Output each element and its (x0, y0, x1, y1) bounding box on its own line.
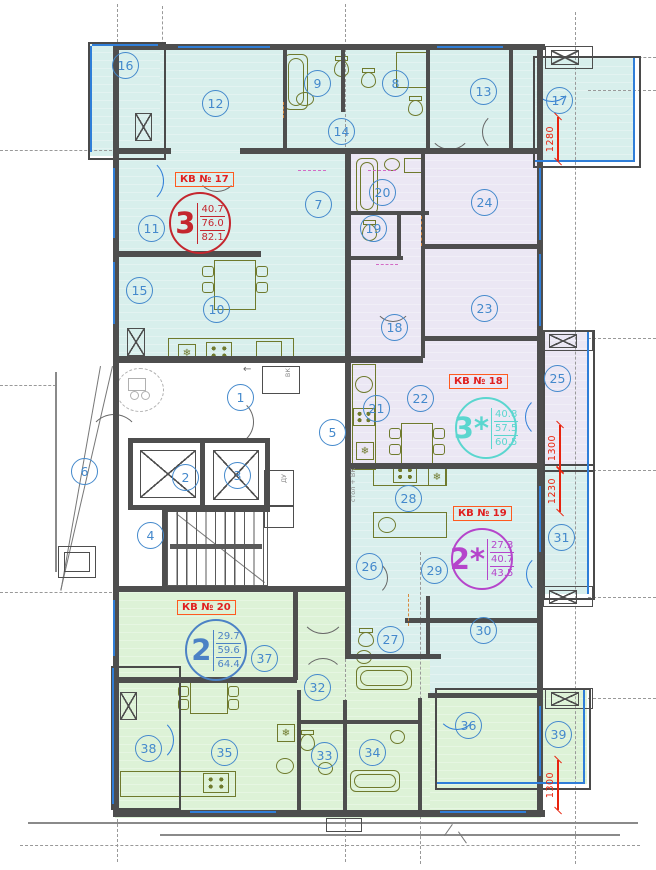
apartment-areas: 29.7 59.6 64.4 (213, 630, 240, 671)
axis-line (588, 597, 656, 598)
door-arc (525, 396, 567, 438)
chair (433, 444, 445, 455)
wheelchair-icon (128, 378, 146, 391)
chair (256, 266, 268, 277)
chair (433, 428, 445, 439)
axis-line (0, 385, 56, 386)
threshold-dash (376, 264, 398, 265)
room-number-27: 27 (377, 626, 404, 653)
axis-line (588, 698, 656, 699)
fridge-icon: ❄ (356, 442, 374, 460)
room-number-26: 26 (356, 553, 383, 580)
vent-shaft (549, 590, 577, 604)
room-number-3: 3 (224, 462, 251, 489)
area-usable: 40.7 (490, 553, 514, 567)
room-number-12: 12 (202, 90, 229, 117)
room-number-31: 31 (548, 524, 575, 551)
bathtub (350, 770, 400, 792)
sink (390, 730, 405, 744)
wall (162, 508, 167, 586)
wall (428, 693, 543, 698)
window (190, 811, 276, 813)
door-arc (428, 106, 472, 150)
chair (228, 699, 239, 710)
wall (421, 152, 425, 358)
door-frame-dash (408, 594, 409, 626)
apartment-areas: 40.8 57.5 60.5 (491, 408, 518, 449)
entry-arrow-icon: ← (243, 364, 251, 375)
window (113, 168, 115, 238)
room-number-11: 11 (138, 215, 165, 242)
sink (355, 376, 373, 393)
vent-shaft (551, 692, 579, 706)
shaft-label: ДУ (280, 474, 288, 483)
window (539, 706, 541, 776)
area-total: 60.5 (494, 436, 518, 449)
door-arc (300, 588, 346, 634)
wall (113, 251, 261, 257)
wall (345, 463, 543, 469)
window (90, 46, 92, 152)
toilet (361, 72, 376, 88)
kitchen-note: стол + ВК (349, 468, 357, 502)
apartment-stamp-18: 3* 40.8 57.5 60.5 (455, 397, 517, 459)
room-number-14: 14 (328, 118, 355, 145)
stove (203, 773, 229, 793)
vent-shaft (135, 113, 152, 141)
wall (345, 211, 429, 215)
room-number-17: 17 (546, 87, 573, 114)
chair (202, 266, 214, 277)
room-number-7: 7 (305, 191, 332, 218)
room-number-9: 9 (304, 70, 331, 97)
shaft-label: ВК (284, 368, 292, 377)
room-number-13: 13 (470, 78, 497, 105)
window (539, 254, 541, 326)
room-number-35: 35 (211, 739, 238, 766)
axis-line (588, 338, 656, 339)
axis-line (20, 845, 640, 846)
foundation-box (326, 818, 362, 832)
apartment-stamp-19: 2* 27.3 40.7 43.5 (451, 528, 513, 590)
apartment-areas: 27.3 40.7 43.5 (487, 539, 514, 580)
wall (297, 690, 301, 814)
wall (200, 443, 205, 508)
room-number-1: 1 (227, 384, 254, 411)
wall (113, 586, 351, 592)
fridge-icon: ❄ (277, 724, 295, 742)
window (437, 46, 503, 48)
wall (113, 356, 423, 363)
room-number-4: 4 (137, 522, 164, 549)
chair (389, 444, 401, 455)
window (178, 46, 270, 48)
apartment-stamp-17: 3 40.7 76.0 82.1 (169, 192, 231, 254)
room-number-6: 6 (71, 458, 98, 485)
window (437, 782, 583, 784)
room-number-22: 22 (407, 385, 434, 412)
door-frame-dash (421, 216, 422, 246)
window (92, 44, 158, 46)
apartment-label-17: КВ № 17 (175, 172, 234, 187)
wheelchair-icon (141, 391, 150, 400)
floor-plan: ❄ ❄ ❄ ❄ ВК ДУ стол + ВК (0, 0, 656, 870)
room-number-29: 29 (421, 557, 448, 584)
area-total: 64.4 (216, 658, 240, 671)
wall (343, 700, 347, 814)
room-number-30: 30 (470, 617, 497, 644)
wall (423, 244, 541, 249)
utility-shaft (262, 366, 300, 394)
bathtub (356, 666, 412, 690)
apartment-label-19: КВ № 19 (453, 506, 512, 521)
wall (426, 596, 430, 658)
room-number-20: 20 (369, 179, 396, 206)
dining-table (190, 682, 228, 714)
wall (426, 50, 430, 150)
window (633, 58, 635, 162)
area-usable: 76.0 (200, 217, 224, 231)
room-number-28: 28 (395, 485, 422, 512)
door-arc (482, 112, 522, 152)
chair (202, 282, 214, 293)
apartment-label-20: КВ № 20 (177, 600, 236, 615)
area-total: 82.1 (200, 231, 224, 244)
room-number-5: 5 (319, 419, 346, 446)
wall (128, 438, 133, 510)
apartment-room-count: 2 (191, 636, 211, 665)
room-number-32: 32 (304, 674, 331, 701)
vent-shaft (127, 328, 145, 356)
room-number-25: 25 (544, 365, 571, 392)
window (535, 160, 635, 162)
window (113, 262, 115, 324)
wall (397, 211, 401, 260)
door-arc (118, 158, 164, 204)
room-number-33: 33 (311, 742, 338, 769)
window (112, 668, 114, 804)
toilet (408, 100, 423, 116)
area-usable: 57.5 (494, 422, 518, 436)
room-number-34: 34 (359, 739, 386, 766)
room-number-23: 23 (471, 295, 498, 322)
room-number-19: 19 (360, 215, 387, 242)
sink (378, 517, 396, 533)
window (583, 690, 585, 784)
window (539, 168, 541, 240)
wall (240, 148, 540, 154)
room-number-15: 15 (126, 277, 153, 304)
apartment-label-18: КВ № 18 (449, 374, 508, 389)
window (539, 486, 541, 552)
window (113, 600, 115, 656)
chair (389, 428, 401, 439)
wall (345, 256, 403, 260)
room-number-16: 16 (112, 52, 139, 79)
wall (297, 720, 419, 724)
room-number-10: 10 (203, 296, 230, 323)
wall (345, 592, 351, 658)
area-total: 43.5 (490, 567, 514, 580)
vent-shaft (120, 692, 137, 720)
area-living: 27.3 (490, 539, 514, 553)
apartment-room-count: 3* (454, 414, 489, 443)
vent-shaft (551, 50, 579, 65)
wall (265, 438, 270, 510)
chair (228, 686, 239, 697)
wheelchair-icon (130, 391, 139, 400)
area-living: 40.8 (494, 408, 518, 422)
wall (113, 148, 171, 154)
room-number-21: 21 (363, 395, 390, 422)
window (587, 332, 589, 594)
window (440, 811, 526, 813)
room-number-37: 37 (251, 645, 278, 672)
apartment-stamp-20: 2 29.7 59.6 64.4 (185, 619, 247, 681)
room-number-36: 36 (455, 712, 482, 739)
apartment-areas: 40.7 76.0 82.1 (197, 203, 224, 244)
wall (345, 148, 351, 592)
foundation-line (160, 834, 620, 836)
wall (418, 698, 422, 814)
wall (283, 50, 287, 150)
stair-rail (170, 544, 262, 549)
chair (256, 282, 268, 293)
fridge-icon: ❄ (428, 468, 446, 486)
sink (276, 758, 294, 774)
wall (293, 590, 298, 680)
room-number-24: 24 (471, 189, 498, 216)
apartment-room-count: 3 (175, 209, 195, 238)
wall (341, 50, 345, 112)
toilet (358, 632, 374, 647)
room-number-38: 38 (135, 735, 162, 762)
axis-line (0, 592, 112, 593)
area-living: 29.7 (216, 630, 240, 644)
area-usable: 59.6 (216, 644, 240, 658)
room-number-2: 2 (172, 464, 199, 491)
ramp-edge (55, 372, 57, 572)
wall (509, 50, 513, 154)
door-frame-dash (283, 102, 284, 118)
threshold-dash (368, 170, 396, 171)
room-number-18: 18 (381, 314, 408, 341)
sink-cabinet (404, 158, 422, 173)
wall (162, 508, 270, 512)
wall (423, 336, 541, 341)
apartment-room-count: 2* (450, 545, 485, 574)
room-number-8: 8 (382, 70, 409, 97)
wall (128, 438, 270, 443)
axis-line (588, 470, 656, 471)
area-living: 40.7 (200, 203, 224, 217)
vent-shaft (549, 334, 577, 348)
threshold-dash (298, 170, 326, 171)
room-number-39: 39 (545, 721, 572, 748)
entrance-box (64, 552, 90, 572)
